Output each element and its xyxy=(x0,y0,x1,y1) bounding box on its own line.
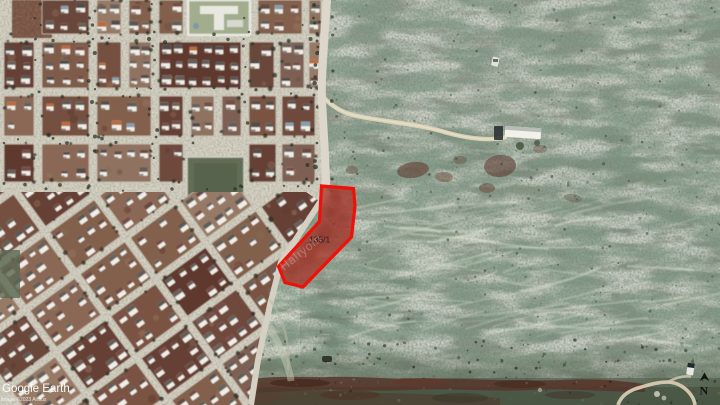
svg-text:Google Earth: Google Earth xyxy=(2,383,70,395)
svg-text:Image ©2023 Airbus: Image ©2023 Airbus xyxy=(1,396,47,403)
svg-text:N: N xyxy=(700,384,709,398)
